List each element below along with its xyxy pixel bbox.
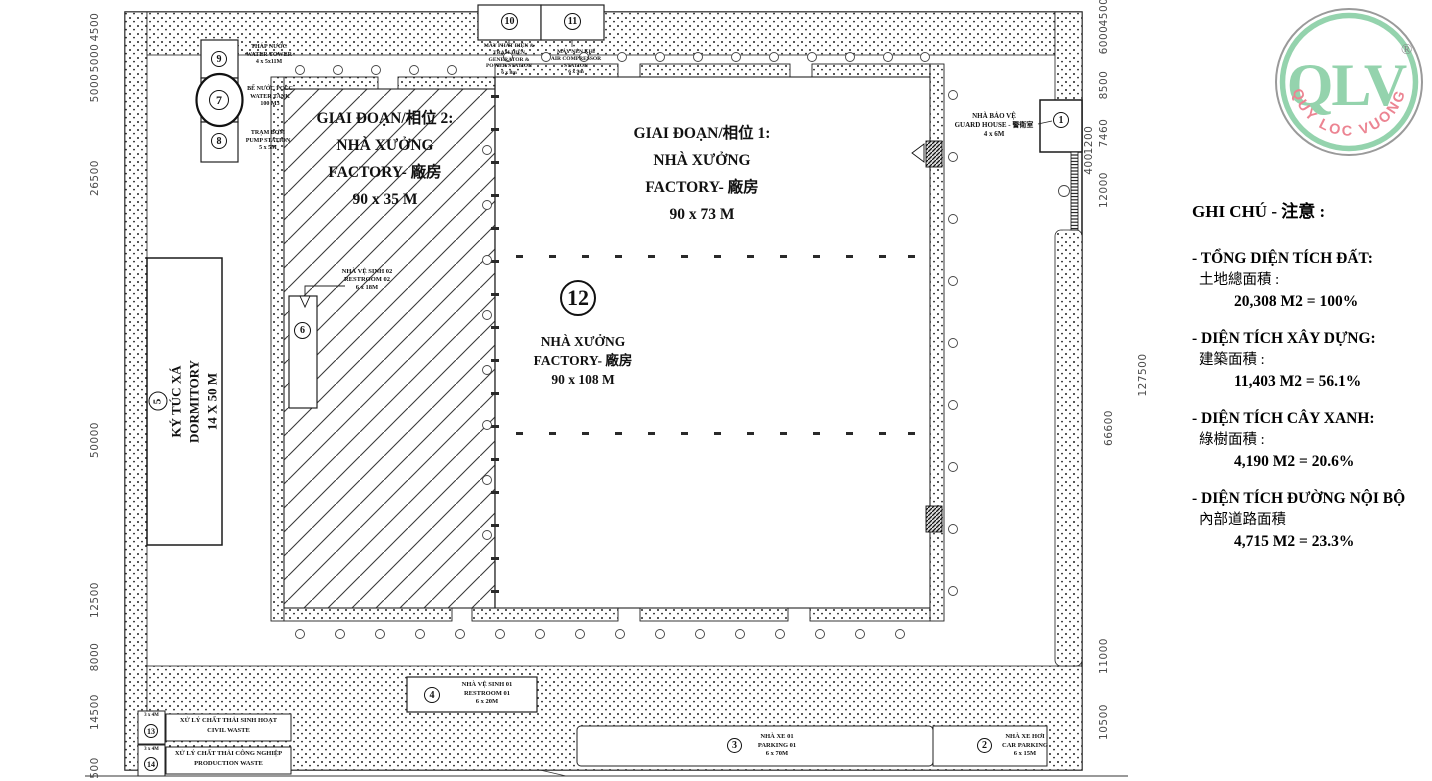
phase2-line1: GIAI ĐOẠN/相位 2: [290, 105, 480, 132]
legend-internal-roads-value: 4,715 M2 = 23.3% [1192, 531, 1432, 553]
legend-greenery-value: 4,190 M2 = 20.6% [1192, 451, 1432, 473]
site-plan-page: GIAI ĐOẠN/相位 2: NHÀ XƯỞNG FACTORY- 廠房 90… [0, 0, 1432, 781]
production-waste-label: XỬ LÝ CHẤT THẢI CÔNG NGHIỆP PRODUCTION W… [167, 749, 290, 769]
dim-left-3: 26500 [89, 143, 101, 213]
legend-greenery-cn: 綠樹面積 : [1192, 430, 1432, 451]
restroom01-line3: 6 x 20M [447, 698, 527, 707]
dormitory-line2: DORMITORY [185, 257, 203, 547]
parking01-number: 3 [727, 738, 742, 753]
phase1-line4: 90 x 73 M [607, 201, 797, 228]
generator-line3: GENERATOR & [477, 57, 541, 64]
pump-station-line1: TRẠM BƠM [240, 130, 296, 138]
water-tower-number: 9 [211, 51, 227, 67]
restroom01-number: 4 [424, 687, 440, 703]
legend-total-land-vn: - TỔNG DIỆN TÍCH ĐẤT: [1192, 248, 1432, 270]
main-line1: NHÀ XƯỞNG [523, 332, 643, 351]
water-tower-line1: THÁP NƯỚC [240, 44, 298, 52]
factory-main-number: 12 [560, 280, 596, 316]
guard-house-number: 1 [1053, 112, 1069, 128]
civil-waste-line1: XỬ LÝ CHẤT THẢI SINH HOẠT [167, 716, 290, 726]
dim-right-5: 400 [1083, 129, 1095, 199]
phase1-line1: GIAI ĐOẠN/相位 1: [607, 120, 797, 147]
dim-left-2: 5000 [89, 53, 101, 123]
guard-house-line3: 4 x 6M [950, 130, 1038, 139]
legend-construction-vn: - DIỆN TÍCH XÂY DỰNG: [1192, 328, 1432, 350]
phase1-line2: NHÀ XƯỞNG [607, 147, 797, 174]
restroom02-line2: RESTROOM 02 [325, 276, 409, 284]
dim-right-outer: 127500 [1137, 340, 1149, 410]
restroom02-line3: 6 x 18M [325, 284, 409, 292]
legend-total-land-cn: 土地總面積 : [1192, 270, 1432, 291]
legend-title: GHI CHÚ - 注意 : [1192, 197, 1432, 222]
generator-line5: 6 x 8m [477, 70, 541, 77]
legend-panel: GHI CHÚ - 注意 : - TỔNG DIỆN TÍCH ĐẤT: 土地總… [1192, 197, 1432, 568]
guard-house-line1: NHÀ BẢO VỆ [950, 112, 1038, 121]
compressor-line2: AIR COMPRESSOR STATION [540, 56, 612, 70]
legend-construction-cn: 建築面積 : [1192, 350, 1432, 371]
dormitory-label: 5 KÝ TÚC XÁ DORMITORY 14 X 50 M [148, 257, 223, 547]
water-tower-label: THÁP NƯỚC WATER TOWER 4 x 5x11M [240, 44, 298, 67]
restroom01-label: NHÀ VỆ SINH 01 RESTROOM 01 6 x 20M [447, 681, 527, 707]
phase1-line3: FACTORY- 廠房 [607, 174, 797, 201]
generator-line1: MÁY PHÁT ĐIỆN & [477, 43, 541, 50]
water-tank-label: BỂ NƯỚC PCCC WATER TANK 100 M3 [243, 86, 297, 109]
factory-phase2-label: GIAI ĐOẠN/相位 2: NHÀ XƯỞNG FACTORY- 廠房 90… [290, 105, 480, 213]
dormitory-number: 5 [148, 257, 168, 547]
dim-left-4: 50000 [89, 405, 101, 475]
legend-construction-value: 11,403 M2 = 56.1% [1192, 371, 1432, 393]
production-waste-number: 14 [144, 757, 158, 771]
entrance-gate [1071, 152, 1078, 230]
pump-station-line3: 5 x 5M [240, 145, 296, 153]
compressor-line3: 6 x 9m [540, 69, 612, 76]
dormitory-line1: KÝ TÚC XÁ [167, 257, 185, 547]
company-logo: QLV ® QUY LOC VUONG [1268, 4, 1430, 162]
parking01-label: NHÀ XE 01 PARKING 01 6 x 70M [744, 733, 810, 759]
water-tank-number: 7 [209, 90, 229, 110]
generator-number: 10 [501, 13, 518, 30]
restroom02-line1: NHÀ VỆ SINH 02 [325, 268, 409, 276]
generator-label: MÁY PHÁT ĐIỆN & TRẠM ĐIỆN GENERATOR & PO… [477, 43, 541, 77]
car-parking-line2: CAR PARKING [995, 742, 1055, 751]
legend-greenery-vn: - DIỆN TÍCH CÂY XANH: [1192, 408, 1432, 430]
phase2-line2: NHÀ XƯỞNG [290, 132, 480, 159]
parking01-line2: PARKING 01 [744, 742, 810, 751]
dormitory-line3: 14 X 50 M [203, 257, 221, 547]
restroom02-number: 6 [294, 322, 311, 339]
factory-phase1-label: GIAI ĐOẠN/相位 1: NHÀ XƯỞNG FACTORY- 廠房 90… [607, 120, 797, 228]
factory-main-label: NHÀ XƯỞNG FACTORY- 廠房 90 x 108 M [523, 332, 643, 389]
water-tank-line3: 100 M3 [243, 101, 297, 109]
water-tower-line3: 4 x 5x11M [240, 59, 298, 67]
restroom01-line2: RESTROOM 01 [447, 690, 527, 699]
legend-item-internal-roads: - DIỆN TÍCH ĐƯỜNG NỘI BỘ 內部道路面積 4,715 M2… [1192, 488, 1432, 553]
legend-item-construction: - DIỆN TÍCH XÂY DỰNG: 建築面積 : 11,403 M2 =… [1192, 328, 1432, 393]
civil-waste-number: 13 [144, 724, 158, 738]
dim-right-9: 10500 [1098, 687, 1110, 757]
compressor-number: 11 [564, 13, 581, 30]
legend-total-land-value: 20,308 M2 = 100% [1192, 291, 1432, 313]
civil-waste-size: 3 x 4M [139, 713, 164, 718]
compressor-line1: MÁY NÉN KHÍ [540, 49, 612, 56]
legend-internal-roads-cn: 內部道路面積 [1192, 510, 1432, 531]
pump-station-line2: PUMP STATION [240, 138, 296, 146]
production-waste-size: 3 x 4M [139, 747, 164, 752]
dim-right-6: 12000 [1098, 155, 1110, 225]
dim-left-8: 500 [89, 733, 101, 781]
car-parking-number: 2 [977, 738, 992, 753]
dim-right-8: 11000 [1098, 621, 1110, 691]
civil-waste-label: XỬ LÝ CHẤT THẢI SINH HOẠT CIVIL WASTE [167, 716, 290, 736]
phase2-line4: 90 x 35 M [290, 186, 480, 213]
car-parking-label: NHÀ XE HƠI CAR PARKING 6 x 15M [995, 733, 1055, 759]
restroom01-line1: NHÀ VỆ SINH 01 [447, 681, 527, 690]
restroom02-label: NHÀ VỆ SINH 02 RESTROOM 02 6 x 18M [325, 268, 409, 292]
legend-item-total-land: - TỔNG DIỆN TÍCH ĐẤT: 土地總面積 : 20,308 M2 … [1192, 248, 1432, 313]
parking01-line3: 6 x 70M [744, 750, 810, 759]
compressor-label: MÁY NÉN KHÍ AIR COMPRESSOR STATION 6 x 9… [540, 49, 612, 76]
civil-waste-line2: CIVIL WASTE [167, 726, 290, 736]
main-line3: 90 x 108 M [523, 370, 643, 389]
production-waste-line2: PRODUCTION WASTE [167, 759, 290, 769]
legend-item-greenery: - DIỆN TÍCH CÂY XANH: 綠樹面積 : 4,190 M2 = … [1192, 408, 1432, 473]
water-tank-line2: WATER TANK [243, 94, 297, 102]
production-waste-line1: XỬ LÝ CHẤT THẢI CÔNG NGHIỆP [167, 749, 290, 759]
pump-station-label: TRẠM BƠM PUMP STATION 5 x 5M [240, 130, 296, 153]
water-tower-line2: WATER TOWER [240, 52, 298, 60]
phase2-line3: FACTORY- 廠房 [290, 159, 480, 186]
guard-house-line2: GUARD HOUSE - 警衛室 [950, 121, 1038, 130]
pump-station-number: 8 [211, 133, 227, 149]
car-parking-line3: 6 x 15M [995, 750, 1055, 759]
water-tank-line1: BỂ NƯỚC PCCC [243, 86, 297, 94]
registered-icon: ® [1401, 42, 1412, 58]
main-line2: FACTORY- 廠房 [523, 351, 643, 370]
parking01-line1: NHÀ XE 01 [744, 733, 810, 742]
generator-line2: TRẠM ĐIỆN [477, 50, 541, 57]
generator-line4: POWER STATION [477, 63, 541, 70]
car-parking-line1: NHÀ XE HƠI [995, 733, 1055, 742]
guard-house-label: NHÀ BẢO VỆ GUARD HOUSE - 警衛室 4 x 6M [950, 112, 1038, 139]
legend-internal-roads-vn: - DIỆN TÍCH ĐƯỜNG NỘI BỘ [1192, 488, 1432, 510]
dim-right-7: 66600 [1103, 393, 1115, 463]
